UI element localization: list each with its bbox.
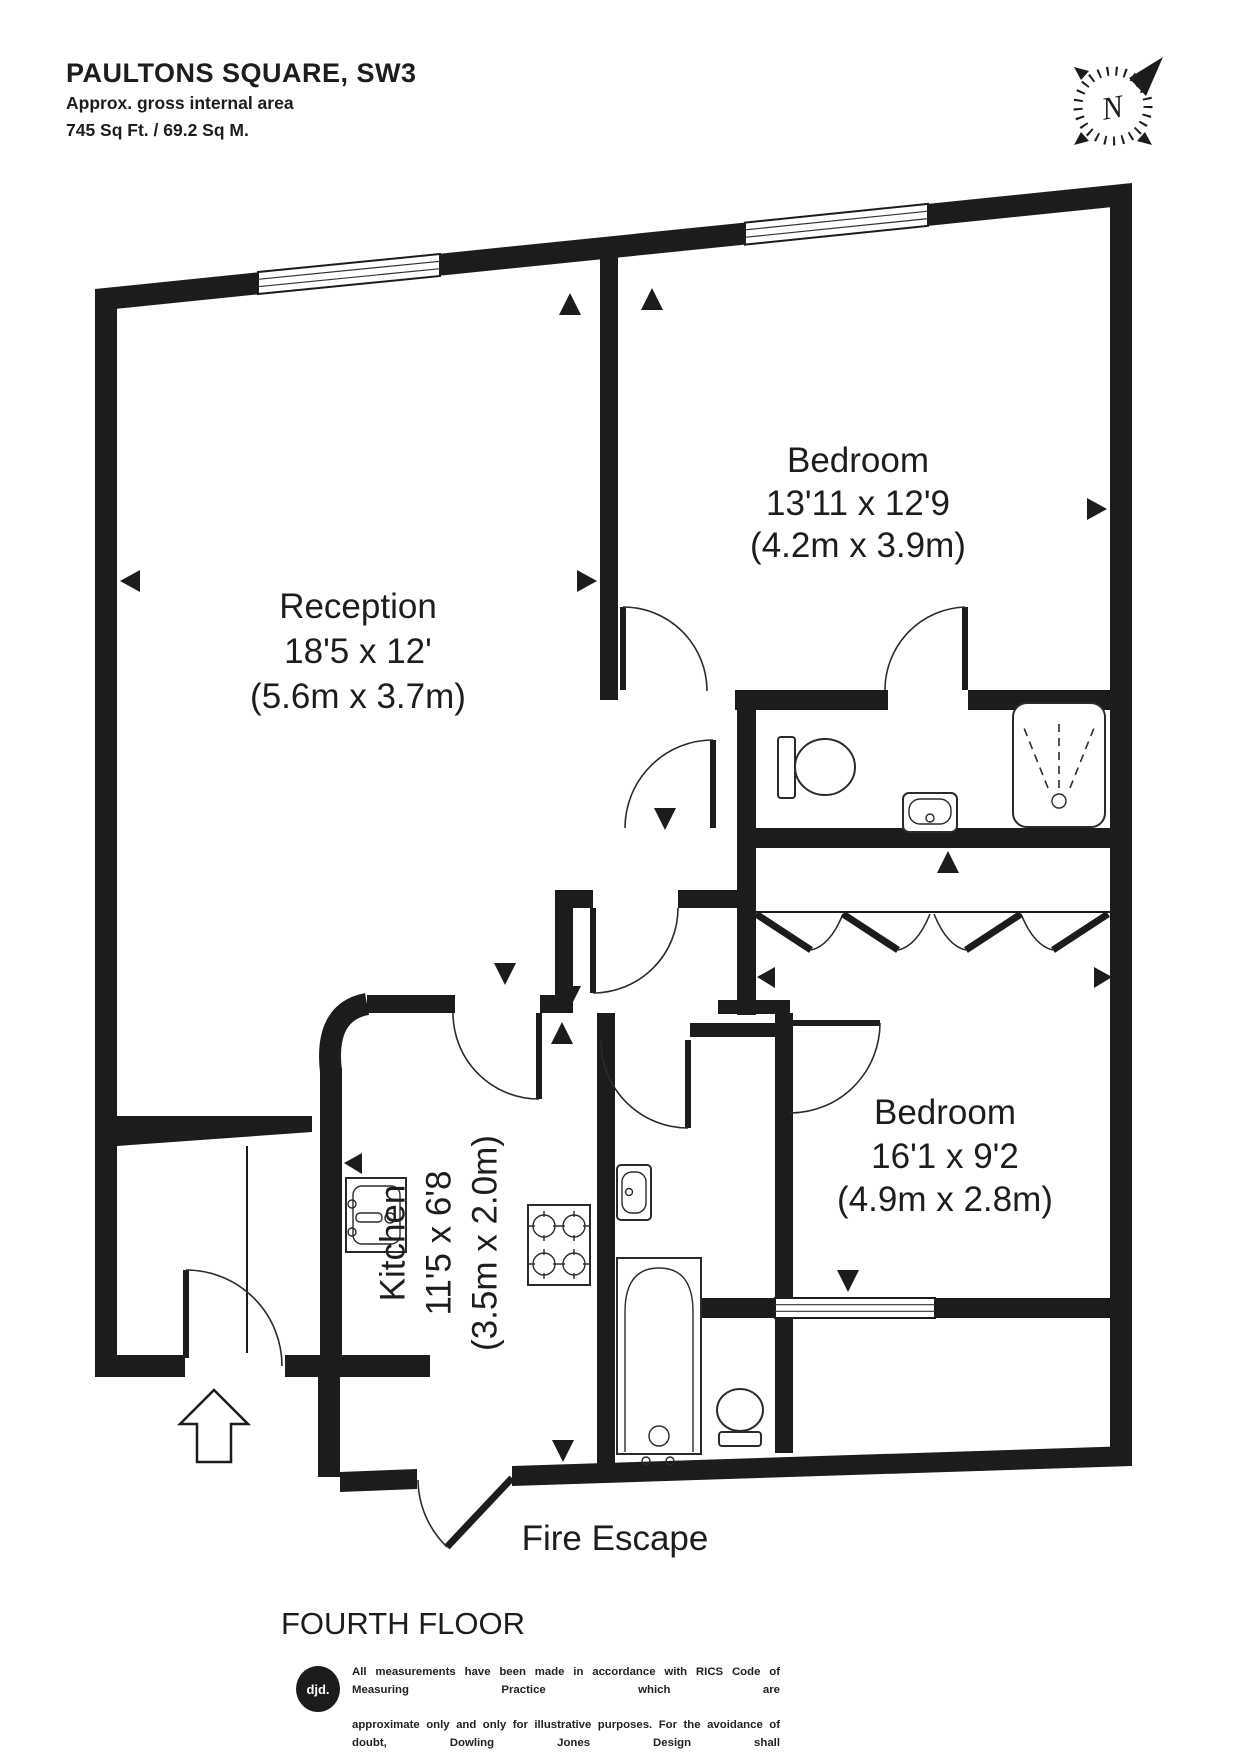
svg-text:16'1 x 9'2: 16'1 x 9'2 (871, 1137, 1019, 1176)
kitchen-door (453, 1013, 542, 1099)
disclaimer: All measurements have been made in accor… (352, 1664, 780, 1754)
window-bedroom2 (775, 1298, 935, 1318)
svg-text:Reception: Reception (279, 587, 437, 626)
bedroom2-door (790, 1020, 880, 1113)
floorplan-page: PAULTONS SQUARE, SW3 Approx. gross inter… (0, 0, 1240, 1754)
wall-bathroom2-right (775, 1013, 793, 1453)
kitchen-label: Kitchen 11'5 x 6'8 (3.5m x 2.0m) (373, 1135, 504, 1351)
wall-hall-top-a (573, 890, 593, 908)
wall-hall-top-b (678, 890, 740, 908)
basin-icon (903, 793, 957, 832)
wall-reception-bottom-a (367, 995, 455, 1013)
wall-fire-escape-jamb (340, 1469, 417, 1492)
floorplan-drawing: N (0, 0, 1240, 1754)
wall-left (95, 295, 117, 1377)
disclaimer-line: approximate only and only for illustrati… (352, 1717, 780, 1754)
disclaimer-line: All measurements have been made in accor… (352, 1664, 780, 1717)
marker-top-a (559, 293, 581, 315)
compass-se-arrow (1137, 132, 1152, 145)
bathroom1-door (885, 607, 968, 690)
svg-text:(4.9m x 2.8m): (4.9m x 2.8m) (837, 1180, 1053, 1219)
svg-text:Kitchen: Kitchen (373, 1185, 412, 1302)
bedroom1-label: Bedroom 13'11 x 12'9 (4.2m x 3.9m) (750, 441, 966, 565)
hob-icon (528, 1205, 590, 1285)
wall-vestibule (737, 690, 756, 1015)
svg-text:(5.6m x 3.7m): (5.6m x 3.7m) (250, 677, 466, 716)
svg-text:11'5 x 6'8: 11'5 x 6'8 (419, 1170, 458, 1315)
floor-label: FOURTH FLOOR (281, 1606, 525, 1641)
compass-north-label: N (1098, 87, 1128, 127)
basin2-icon (617, 1165, 651, 1220)
marker-bedroom2-bottom (837, 1270, 859, 1292)
marker-reception-right (577, 570, 597, 592)
wall-kitchen-curve (330, 1004, 367, 1072)
doors (183, 607, 968, 1547)
compass-sw-arrow (1074, 132, 1089, 145)
wall-reception-bedroom1-divider (600, 248, 618, 700)
svg-text:13'11 x 12'9: 13'11 x 12'9 (766, 484, 950, 523)
bedroom2-label: Bedroom 16'1 x 9'2 (4.9m x 2.8m) (837, 1093, 1053, 1219)
marker-reception-bottom (494, 963, 516, 985)
fire-escape-door (418, 1478, 512, 1547)
entrance-arrow-icon (180, 1390, 248, 1462)
wall-entry-bottom-left (95, 1355, 185, 1377)
svg-text:(3.5m x 2.0m): (3.5m x 2.0m) (465, 1135, 504, 1351)
toilet-icon (778, 737, 855, 798)
wall-kitchen-connector (318, 1377, 340, 1477)
svg-text:(4.2m x 3.9m): (4.2m x 3.9m) (750, 526, 966, 565)
compass-icon: N (1074, 57, 1163, 145)
marker-vestibule (654, 808, 676, 830)
fire-escape-label: Fire Escape (522, 1519, 709, 1558)
wall-bathroom2-left (597, 1013, 615, 1468)
reception-label: Reception 18'5 x 12' (5.6m x 3.7m) (250, 587, 466, 716)
bedroom1-door (620, 607, 707, 691)
hall-door (590, 908, 678, 993)
wardrobe-bifold-doors (756, 912, 1112, 950)
bath-icon (617, 1258, 701, 1465)
toilet2-icon (717, 1389, 763, 1446)
wall-entry-bottom-right (285, 1355, 430, 1377)
marker-wardrobe-left (757, 967, 775, 988)
svg-text:18'5 x 12': 18'5 x 12' (284, 632, 432, 671)
marker-kitchen (344, 1153, 362, 1174)
svg-text:Bedroom: Bedroom (874, 1093, 1016, 1132)
marker-bathroom1 (937, 851, 959, 873)
wall-bedroom2-stub (718, 1000, 790, 1014)
wall-kitchen-left (320, 1068, 342, 1377)
marker-bedroom1-right (1087, 498, 1107, 520)
bathroom1-fixtures (778, 703, 1105, 832)
compass-nw-arrow (1074, 67, 1089, 80)
marker-fire-escape (552, 1440, 574, 1462)
marker-wardrobe-right (1094, 967, 1112, 988)
window-bedroom1 (745, 204, 928, 245)
marker-reception-left (120, 570, 140, 592)
window-reception (258, 254, 440, 294)
wall-bathroom2-top (690, 1023, 775, 1037)
wall-entry-stub (117, 1116, 312, 1146)
svg-text:Bedroom: Bedroom (787, 441, 929, 480)
compass-ne-arrow (1129, 57, 1163, 96)
shower-icon (1013, 703, 1105, 827)
entry-door (183, 1270, 282, 1366)
marker-hall-up (551, 1022, 573, 1044)
marker-top-b (641, 288, 663, 310)
wall-bathroom1-top-a (735, 690, 888, 710)
djd-logo: djd. (296, 1666, 340, 1712)
